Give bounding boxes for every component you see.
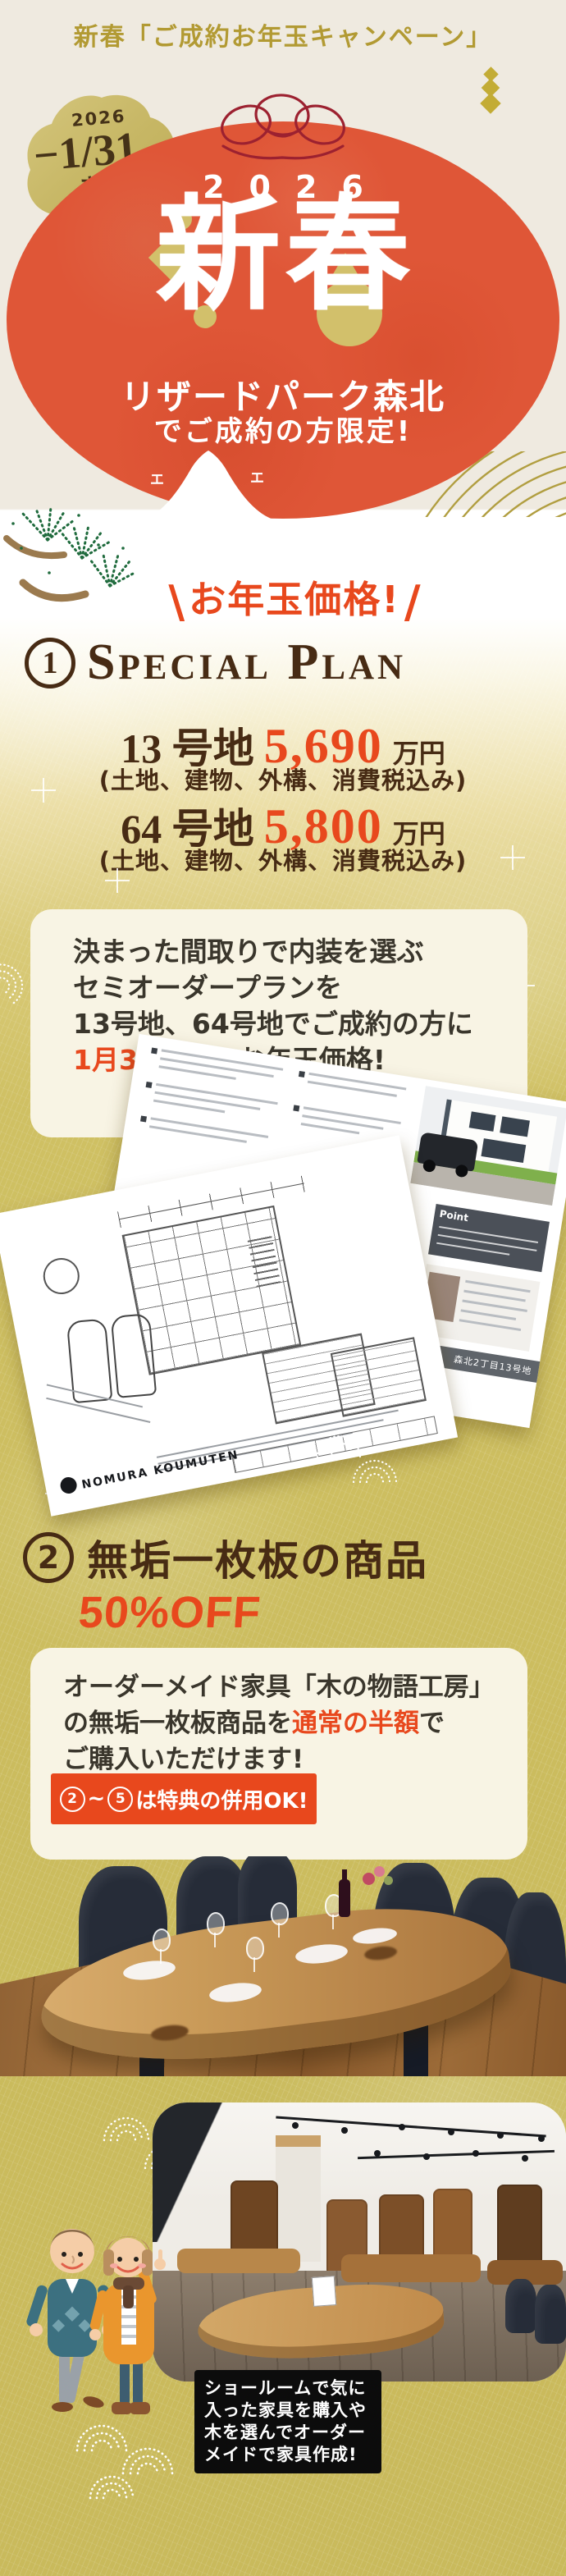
offer2-heading: 2 無垢一枚板の商品: [23, 1528, 428, 1587]
builder-logo: NOMURA KOUMUTEN: [59, 1444, 240, 1496]
couple-illustration: [23, 2179, 171, 2433]
showroom-caption: ショールームで気に 入った家具を購入や 木を選んでオーダー メイドで家具作成!: [194, 2370, 381, 2473]
tree-symbol: [40, 1255, 83, 1297]
car-outline: [111, 1313, 157, 1398]
showroom-pillar: [276, 2135, 321, 2262]
circled-number-1: 1: [25, 638, 75, 689]
info-card-stand: [312, 2276, 336, 2307]
hero-subtitle-2: でご成約の方限定!: [0, 409, 566, 449]
flower: [363, 1873, 375, 1885]
lot-price-note: (土地、建物、外構、消費税込み): [0, 762, 566, 796]
offer2-desc-line: の無垢一枚板商品を通常の半額で: [63, 1705, 495, 1741]
house-render-photo: [410, 1086, 566, 1206]
plan-desc-line: 13号地、64号地でご成約の方に: [73, 1006, 473, 1042]
point-box: Point: [428, 1204, 550, 1272]
offer2-description-card: オーダーメイド家具「木の物語工房」 の無垢一枚板商品を通常の半額で ご購入いただ…: [30, 1648, 527, 1860]
sparkle-icon: [105, 868, 130, 893]
offer2-discount: 50%OFF: [77, 1587, 262, 1638]
display-table: [341, 2254, 481, 2282]
caption-line: メイドで家具作成!: [204, 2444, 372, 2466]
flower: [384, 1876, 393, 1885]
flyer-page: 新春「ご成約お年玉キャンペーン」 2026 −1/31 FRI まで 2026 …: [0, 0, 566, 2576]
chair: [535, 2285, 566, 2344]
dining-table-photo: [0, 1856, 566, 2076]
campaign-title: 新春「ご成約お年玉キャンペーン」: [0, 16, 566, 53]
flower: [374, 1866, 385, 1877]
diamond-ornament-icon: [483, 69, 498, 111]
special-plan-heading: 1 Special Plan: [25, 634, 406, 692]
hero-main-title-group: 新春: [146, 204, 425, 359]
wine-glass: [246, 1937, 264, 1960]
wine-glass: [153, 1929, 171, 1951]
wine-glass: [207, 1912, 225, 1935]
sparkle-icon: [31, 778, 56, 803]
caption-line: ショールームで気に: [204, 2377, 372, 2400]
slash-left: \: [168, 576, 185, 628]
lot-price-note: (土地、建物、外構、消費税込み): [0, 842, 566, 876]
offer2-title: 無垢一枚板の商品: [87, 1528, 428, 1587]
plan-desc-line: セミオーダープランを: [73, 970, 473, 1006]
offer2-desc-line: オーダーメイド家具「木の物語工房」: [63, 1669, 495, 1705]
showroom-photo: [153, 2102, 566, 2382]
wine-glass: [271, 1902, 289, 1925]
mizuhiki-knot-icon: [199, 82, 367, 164]
sunray-arcs-icon: [417, 451, 566, 517]
seigaiha-wave-icon: [316, 1434, 398, 1485]
chair: [505, 2279, 536, 2333]
offer2-desc-line: ご購入いただけます!: [63, 1741, 495, 1778]
circled-number-2: 2: [23, 1532, 74, 1583]
plan-desc-line: 決まった間取りで内装を選ぶ: [73, 934, 473, 970]
builder-logo-icon: [59, 1476, 78, 1494]
hero-main-title: 新春: [156, 181, 415, 330]
caption-line: 入った家具を購入や: [204, 2400, 372, 2422]
special-plan-title: Special Plan: [87, 634, 406, 692]
wine-bottle: [339, 1879, 350, 1917]
benefits-combination-banner: 2 ~ 5 は特典の併用OK!: [51, 1773, 317, 1824]
torii-mark: エ: [150, 468, 164, 488]
otoshidama-price-callout: \ お年玉価格! /: [11, 570, 566, 628]
slash-right: /: [404, 576, 421, 628]
woman-illustration: [89, 2236, 166, 2414]
seigaiha-wave-icon: [75, 2423, 174, 2501]
torii-mark: エ: [250, 466, 264, 487]
display-table: [177, 2249, 300, 2273]
caption-line: 木を選んでオーダー: [204, 2422, 372, 2444]
sparkle-icon: [500, 845, 525, 870]
